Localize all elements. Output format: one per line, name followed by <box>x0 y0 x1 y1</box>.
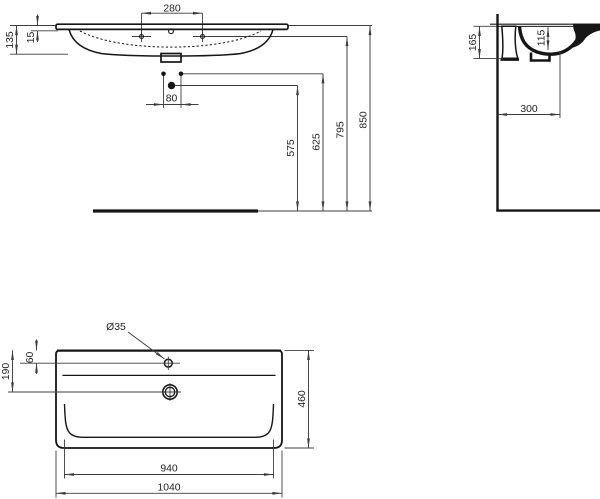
extension-lines-plan <box>56 350 314 497</box>
extension-lines <box>10 13 372 211</box>
dim-label-dia35: Ø35 <box>106 322 126 333</box>
plan-view: Ø35 60 190 460 940 1040 <box>1 322 314 498</box>
fixing-hole-right <box>179 72 184 77</box>
basin-front-outline <box>56 24 288 62</box>
dim-label-795: 795 <box>336 121 347 139</box>
dim-label-60: 60 <box>25 352 36 364</box>
dim-label-115: 115 <box>537 30 548 47</box>
dim-label-300: 300 <box>520 104 538 115</box>
dim-label-850: 850 <box>359 111 370 129</box>
dim-label-1040: 1040 <box>157 483 180 494</box>
bowl-outline-plan <box>65 404 274 437</box>
dim-label-940: 940 <box>160 464 178 475</box>
bowl-wall-section <box>520 27 582 55</box>
dim-label-625: 625 <box>312 133 323 151</box>
dim-label-190: 190 <box>1 363 12 381</box>
tap-hole-marker-left <box>132 31 151 42</box>
back-ledge-section <box>502 26 518 58</box>
dim-label-575: 575 <box>286 139 297 157</box>
side-view: 165 115 300 <box>468 14 600 211</box>
technical-drawing: 280 135 15 80 575 625 795 850 <box>0 0 600 499</box>
dim-label-80: 80 <box>166 94 178 105</box>
drain-boss-front <box>161 54 181 63</box>
dimension-lines-front <box>17 13 371 211</box>
tap-hole-marker-right <box>193 31 212 42</box>
dim-label-135: 135 <box>5 31 16 49</box>
drawing-canvas: 280 135 15 80 575 625 795 850 <box>0 0 600 499</box>
dim-label-15: 15 <box>26 32 37 44</box>
fixing-hole-left <box>161 72 166 77</box>
dim-label-460: 460 <box>297 390 308 408</box>
front-view: 280 135 15 80 575 625 795 850 <box>5 4 372 212</box>
drain-hole-plan <box>8 383 181 401</box>
dim-label-280: 280 <box>163 4 181 15</box>
leader-line-tap-hole <box>128 332 165 359</box>
dim-label-165: 165 <box>468 34 479 52</box>
dimension-lines-side <box>480 26 561 114</box>
drain-point <box>168 82 175 89</box>
